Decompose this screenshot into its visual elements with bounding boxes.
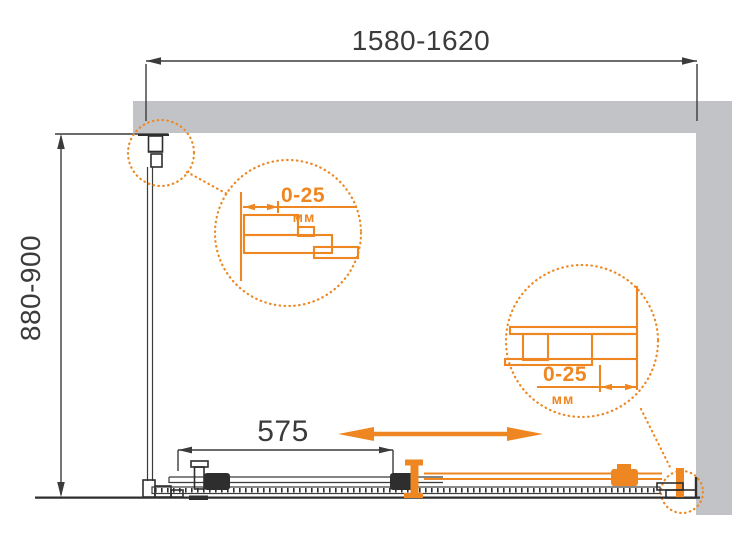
arrow-left-icon [146, 57, 161, 65]
detail-circle-right [506, 265, 658, 417]
detail-arrow-right-icon [625, 384, 636, 390]
arrow-left-icon [178, 447, 192, 454]
detail-arrow-right-icon [267, 204, 278, 210]
roller-left [204, 473, 230, 490]
detail-circle-left [215, 160, 361, 306]
wall-right [696, 101, 732, 515]
right-end-profile [657, 468, 696, 498]
right-detail-unit-label: мм [552, 391, 575, 407]
detail-arrow-left-icon [601, 384, 612, 390]
depth-dimension-label: 880-900 [15, 235, 46, 341]
arrow-up-icon [57, 134, 65, 149]
leader-line-bottom-right [641, 409, 671, 469]
dimension-depth: 880-900 [15, 134, 168, 497]
arrow-down-icon [57, 482, 65, 497]
roller-right-orange [611, 464, 638, 486]
detail-right-profile: 0-25 мм [505, 286, 638, 407]
left-detail-unit-label: мм [293, 209, 316, 225]
leader-line-top-left [187, 172, 227, 194]
width-dimension-label: 1580-1620 [352, 25, 490, 56]
technical-drawing-page: 1580-1620 880-900 0-25 мм [0, 0, 750, 540]
door-dimension-label: 575 [257, 415, 309, 448]
slide-direction-arrow-icon [338, 427, 543, 441]
detail-arrow-left-icon [244, 204, 255, 210]
corner-bracket [143, 480, 155, 497]
shower-enclosure-drawing: 1580-1620 880-900 0-25 мм [0, 0, 750, 540]
right-detail-range-label: 0-25 [543, 363, 587, 386]
detail-left-profile: 0-25 мм [241, 184, 358, 281]
wall-top [133, 101, 732, 133]
dimension-door: 575 [178, 415, 393, 477]
left-detail-range-label: 0-25 [281, 184, 325, 207]
arrow-right-icon [379, 447, 393, 454]
arrow-right-icon [682, 57, 697, 65]
track-assembly [35, 460, 700, 501]
